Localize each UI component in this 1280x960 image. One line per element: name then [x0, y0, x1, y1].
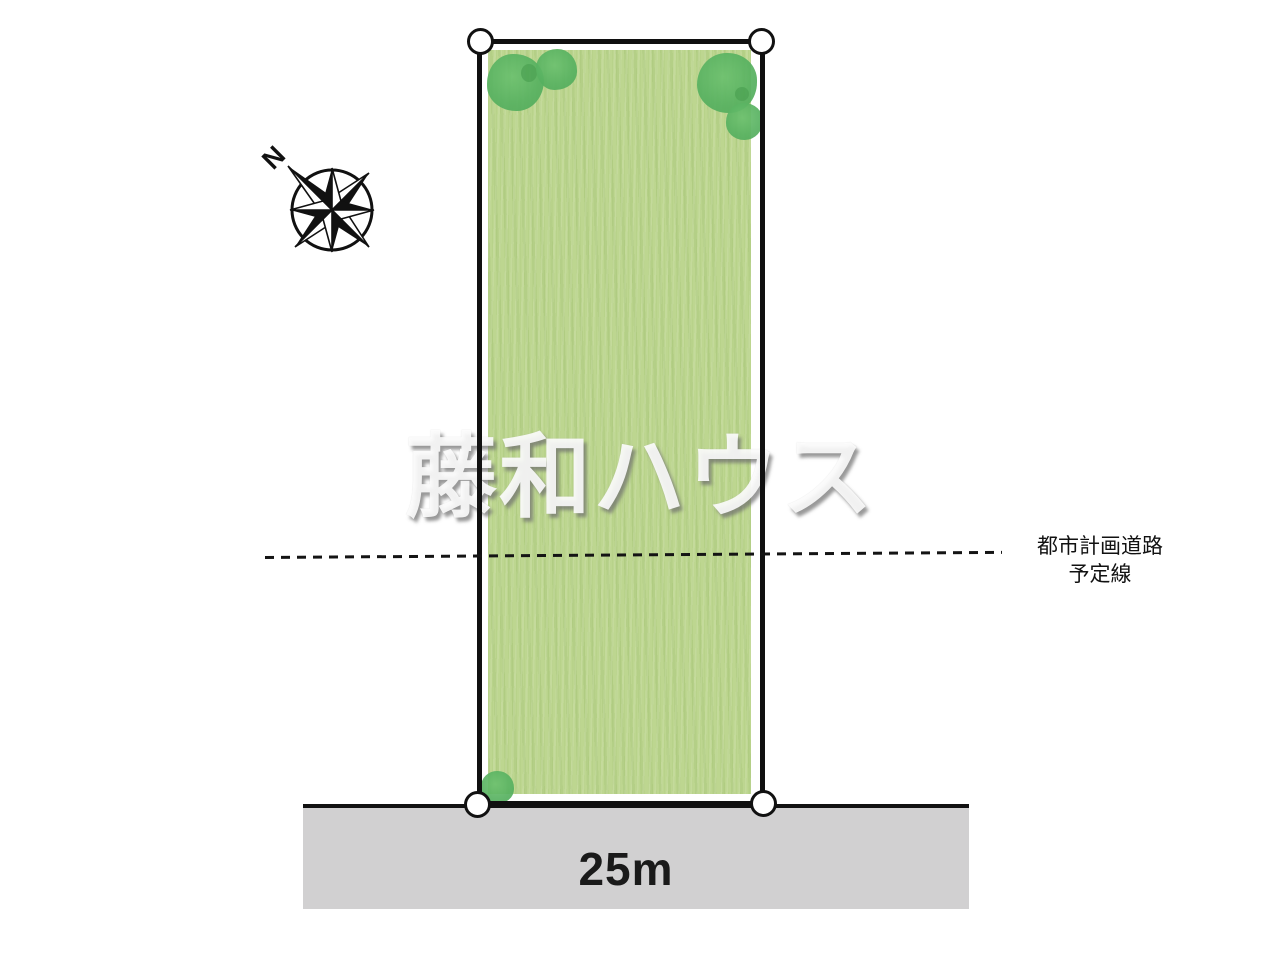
compass-north-label: N — [256, 140, 291, 175]
compass-rose-icon: N — [242, 120, 422, 300]
survey-marker-icon — [464, 791, 491, 818]
planned-road-label-line2: 予定線 — [1020, 561, 1180, 589]
planned-road-label-line1: 都市計画道路 — [1020, 533, 1180, 561]
plot-boundary — [477, 39, 765, 806]
survey-marker-icon — [467, 28, 494, 55]
survey-marker-icon — [748, 28, 775, 55]
land-plot-diagram: 藤和ハウス 都市計画道路 予定線 25m N — [0, 0, 1280, 960]
road-band: 25m — [303, 804, 969, 909]
planned-road-label: 都市計画道路 予定線 — [1020, 533, 1180, 589]
survey-marker-icon — [750, 790, 777, 817]
road-width-label: 25m — [303, 842, 969, 896]
